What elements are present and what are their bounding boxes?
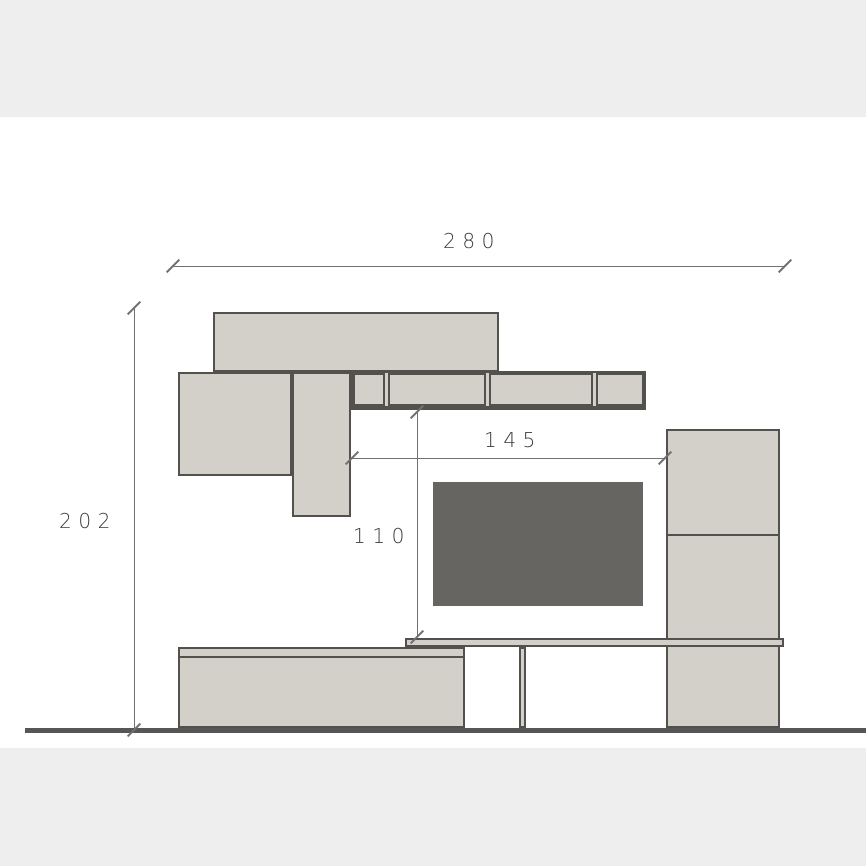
shelf-compartment bbox=[596, 373, 644, 406]
open-shelf-unit bbox=[351, 371, 646, 410]
dimension-label-alcove-width: 145 bbox=[453, 428, 573, 452]
shelf-compartment bbox=[388, 373, 486, 406]
cabinet-door-divider bbox=[668, 534, 778, 536]
dimension-line-alcove-width bbox=[352, 458, 665, 459]
dimension-label-alcove-height: 110 bbox=[322, 524, 442, 548]
elevation-drawing: 280 202 145 110 bbox=[0, 0, 866, 866]
tv-shelf-board bbox=[405, 638, 784, 647]
wall-cabinet-middle bbox=[292, 372, 351, 517]
floor-line bbox=[25, 728, 866, 733]
dimension-label-overall-width: 280 bbox=[412, 229, 532, 253]
wall-cabinet-left bbox=[178, 372, 292, 476]
tv-panel bbox=[433, 482, 643, 606]
top-gray-band bbox=[0, 0, 866, 117]
dimension-line-overall-width bbox=[173, 266, 785, 267]
shelf-compartment bbox=[353, 373, 385, 406]
wall-cabinet-top bbox=[213, 312, 499, 372]
bench-lowboard bbox=[178, 647, 465, 728]
dimension-label-overall-height: 202 bbox=[28, 509, 148, 533]
shelf-leg bbox=[519, 647, 526, 728]
tall-cabinet-right bbox=[666, 429, 780, 728]
shelf-compartment bbox=[489, 373, 593, 406]
bench-top-lid bbox=[180, 649, 463, 658]
bottom-gray-band bbox=[0, 748, 866, 866]
